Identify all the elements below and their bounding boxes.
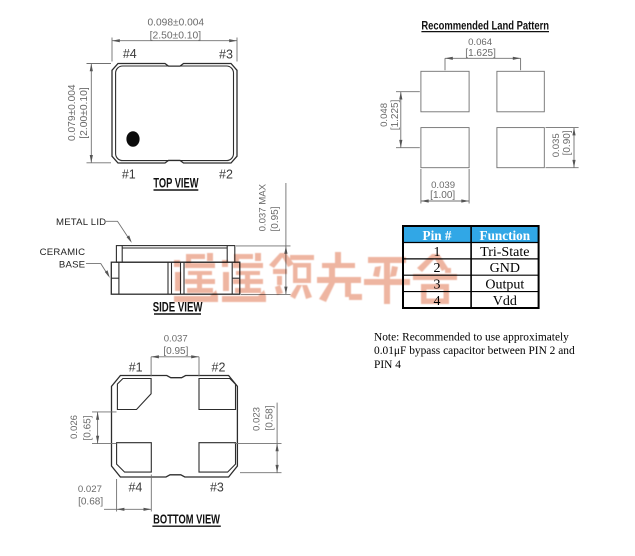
- svg-text:0.098±0.004: 0.098±0.004: [148, 18, 205, 29]
- svg-text:PIN 4: PIN 4: [374, 359, 401, 371]
- svg-text:0.048: 0.048: [379, 103, 390, 127]
- svg-text:0.037: 0.037: [164, 333, 188, 344]
- svg-text:#4: #4: [123, 47, 137, 61]
- svg-text:GND: GND: [490, 261, 520, 276]
- svg-text:[0.68]: [0.68]: [78, 497, 103, 508]
- svg-text:[0.58]: [0.58]: [264, 405, 275, 430]
- svg-text:Function: Function: [480, 228, 531, 243]
- svg-text:[2.00±0.10]: [2.00±0.10]: [79, 87, 90, 139]
- svg-text:[0.65]: [0.65]: [83, 415, 94, 440]
- svg-text:[0.90]: [0.90]: [562, 130, 573, 155]
- svg-text:#1: #1: [129, 360, 143, 374]
- svg-text:METAL LID: METAL LID: [56, 217, 106, 228]
- svg-text:#2: #2: [212, 360, 226, 374]
- svg-text:#3: #3: [219, 48, 233, 62]
- svg-text:Output: Output: [485, 278, 524, 293]
- svg-text:#1: #1: [122, 168, 136, 182]
- svg-text:#4: #4: [128, 481, 142, 495]
- svg-text:CERAMIC: CERAMIC: [40, 247, 86, 258]
- svg-text:[2.50±0.10]: [2.50±0.10]: [150, 31, 202, 42]
- svg-text:0.064: 0.064: [468, 37, 493, 48]
- svg-text:0.037 MAX: 0.037 MAX: [258, 183, 269, 231]
- svg-text:Vdd: Vdd: [493, 294, 517, 309]
- svg-text:SIDE VIEW: SIDE VIEW: [153, 300, 204, 315]
- svg-text:0.023: 0.023: [252, 407, 263, 431]
- svg-text:[0.95]: [0.95]: [270, 206, 281, 231]
- svg-text:0.026: 0.026: [69, 415, 80, 439]
- svg-text:0.01μF bypass capacitor betwee: 0.01μF bypass capacitor between PIN 2 an…: [374, 345, 575, 357]
- svg-text:0.035: 0.035: [551, 133, 562, 157]
- svg-text:#3: #3: [210, 481, 224, 495]
- svg-text:Pin #: Pin #: [423, 228, 452, 243]
- svg-text:BOTTOM VIEW: BOTTOM VIEW: [153, 513, 220, 527]
- svg-text:Recommended Land Pattern: Recommended Land Pattern: [421, 19, 549, 32]
- svg-text:[1.625]: [1.625]: [465, 48, 496, 59]
- svg-text:[1.00]: [1.00]: [430, 190, 455, 201]
- svg-text:Tri-State: Tri-State: [480, 245, 529, 260]
- svg-text:[0.95]: [0.95]: [163, 346, 188, 357]
- svg-text:TOP VIEW: TOP VIEW: [153, 177, 198, 191]
- svg-text:[1.225]: [1.225]: [390, 99, 401, 130]
- svg-text:0.079±0.004: 0.079±0.004: [67, 84, 78, 141]
- svg-text:#2: #2: [219, 168, 233, 182]
- svg-text:0.027: 0.027: [78, 484, 102, 495]
- svg-text:Note: Recommended to use appro: Note: Recommended to use approximately: [374, 331, 569, 343]
- svg-text:BASE: BASE: [59, 259, 85, 270]
